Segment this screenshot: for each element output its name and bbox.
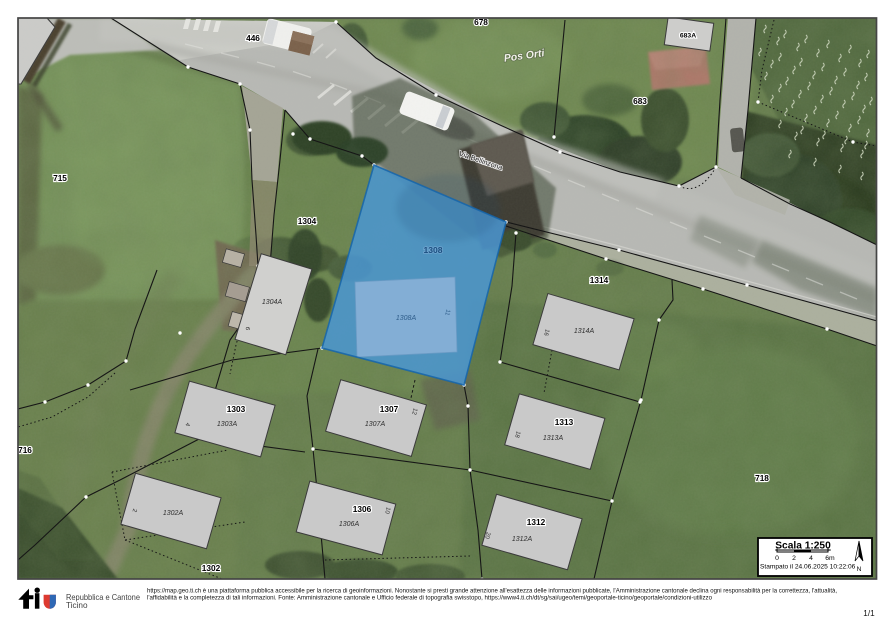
svg-text:1312: 1312 (527, 517, 546, 527)
svg-text:1303A: 1303A (217, 421, 238, 428)
svg-text:715: 715 (53, 173, 67, 183)
svg-text:1302A: 1302A (163, 510, 184, 517)
svg-text:Ticino: Ticino (66, 601, 88, 610)
svg-text:1312A: 1312A (512, 536, 533, 543)
svg-text:https://map.geo.ti.ch è una pi: https://map.geo.ti.ch è una piattaforma … (147, 588, 837, 595)
svg-text:718: 718 (755, 473, 769, 483)
svg-text:1306A: 1306A (339, 521, 360, 528)
svg-text:1308A: 1308A (396, 315, 417, 322)
svg-text:6m: 6m (825, 555, 835, 562)
svg-text:1304A: 1304A (262, 299, 283, 306)
svg-text:1304: 1304 (298, 216, 317, 226)
svg-text:446: 446 (246, 33, 260, 43)
svg-text:1314: 1314 (590, 275, 609, 285)
svg-text:N: N (857, 566, 862, 573)
svg-text:716: 716 (18, 445, 32, 455)
svg-text:1308: 1308 (423, 245, 442, 255)
svg-text:1313A: 1313A (543, 435, 564, 442)
svg-text:1313: 1313 (555, 417, 574, 427)
svg-text:1314A: 1314A (574, 328, 595, 335)
svg-text:l'affidabilità e la completezz: l'affidabilità e la completezza di tali … (147, 595, 713, 602)
svg-text:4: 4 (809, 555, 813, 562)
svg-text:1303: 1303 (227, 404, 246, 414)
svg-text:Stampato il 24.06.2025 10:22:0: Stampato il 24.06.2025 10:22:06 (760, 564, 856, 571)
svg-text:1/1: 1/1 (863, 609, 875, 618)
svg-text:683A: 683A (680, 33, 696, 40)
svg-text:0: 0 (775, 555, 779, 562)
svg-text:1307A: 1307A (365, 421, 386, 428)
svg-text:683: 683 (633, 96, 647, 106)
svg-text:1306: 1306 (353, 504, 372, 514)
svg-text:1302: 1302 (202, 563, 221, 573)
svg-text:1307: 1307 (380, 404, 399, 414)
svg-text:2: 2 (792, 555, 796, 562)
